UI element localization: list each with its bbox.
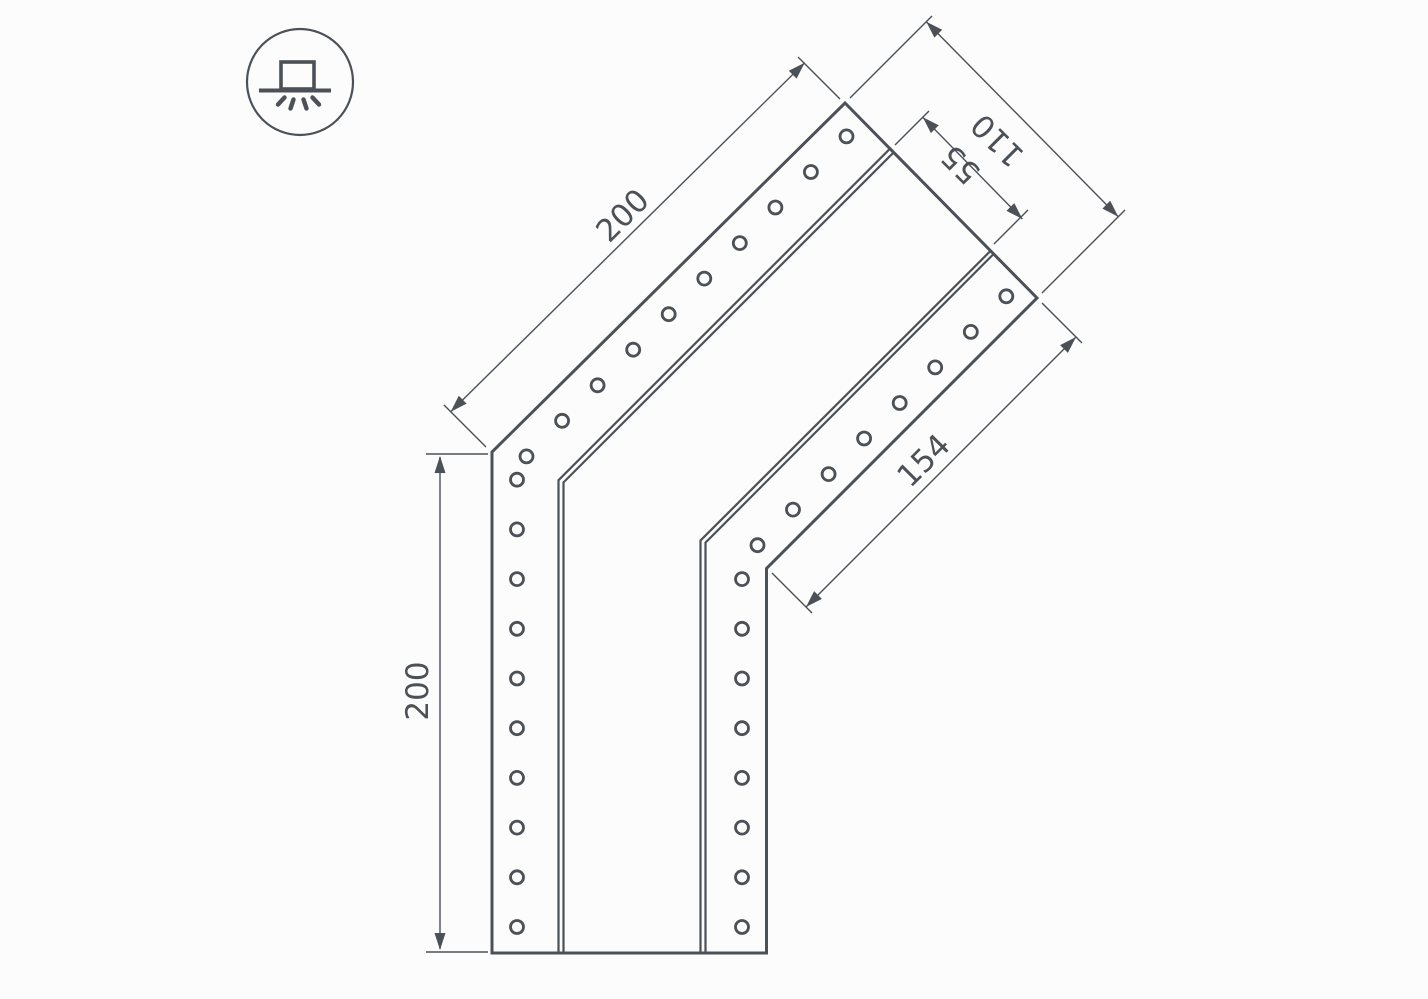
- icon-fixture-body: [281, 62, 314, 89]
- dim-label-154: 154: [890, 427, 957, 494]
- profile-channel-lines: [559, 149, 994, 953]
- icon-circle: [247, 29, 353, 135]
- surface-mounted-light-icon: [247, 29, 353, 135]
- profile-outline: [492, 103, 1037, 953]
- technical-drawing-canvas: 200 200 110 55 154: [0, 0, 1428, 999]
- dim-line-154: [806, 337, 1076, 607]
- dimension-labels: 200 200 110 55 154: [400, 106, 1032, 720]
- dim-label-diagonal-200: 200: [589, 182, 656, 249]
- technical-drawing-page: 200 200 110 55 154: [0, 0, 1428, 999]
- dim-line-diagonal-200: [451, 63, 805, 412]
- dim-label-vertical-200: 200: [400, 661, 436, 720]
- dim-line-110: [926, 22, 1118, 217]
- mounting-holes: [511, 130, 1013, 934]
- profile-body: [492, 103, 1037, 953]
- icon-light-rays: [278, 98, 319, 109]
